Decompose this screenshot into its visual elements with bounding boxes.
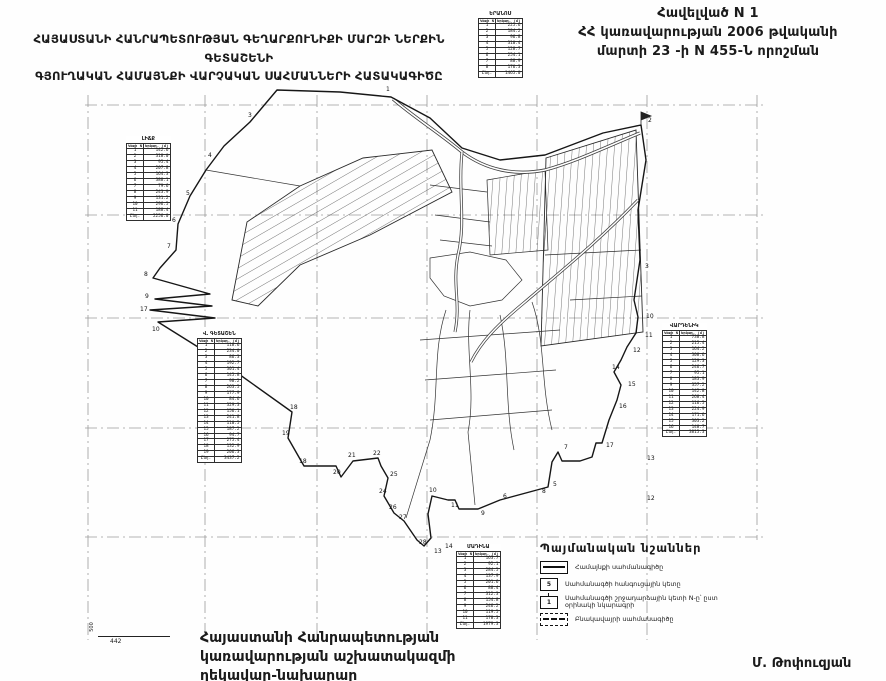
mini-table-east: ՎԱՐԴԵՆԻԿԿետի NԵրկար. (մ)1738.82215.43164… [662, 323, 707, 437]
title-line1: ՀԱՅԱՍՏԱՆԻ ՀԱՆՐԱՊԵՏՈՒԹՅԱՆ ԳԵՂԱՐՔՈՒՆԻՔԻ ՄԱ… [6, 30, 472, 67]
mini-table-title: ՎԱՐԴԵՆԻԿ [662, 323, 707, 329]
mini-table-west: ԼԻՃՔԿետի NԵրկար. (մ)1142.62318.0395.4420… [126, 136, 171, 221]
point-label: 3 [645, 263, 649, 270]
point-label: 14 [612, 364, 620, 371]
point-label: 27 [399, 514, 407, 521]
point-label: 9 [481, 510, 485, 517]
scanned-map-page: 1234567891710310111214151617758691110131… [0, 0, 886, 681]
legend-item: 5Սահմանագծի հանգուցային կետը [540, 578, 750, 591]
appendix-line3: մարտի 23 -ի N 455-Ն որոշման [540, 43, 876, 62]
mini-table-north: ԵՐԱՆՈՍԿետի NԵրկար. (մ)1225.62184.2396.84… [478, 11, 523, 78]
table-cell: 3815.3 [680, 431, 706, 437]
appendix-line2: ՀՀ կառավարության 2006 թվականի [540, 24, 876, 43]
point-label: 5 [186, 190, 190, 197]
table-row: Ընդ.3815.3 [663, 431, 707, 437]
table-cell: Ընդ. [127, 214, 144, 220]
point-label: 25 [390, 471, 398, 478]
legend-item: 1Սահմանագծի շրջադարձային կետի N-ը՝ ըստ օ… [540, 595, 750, 609]
map-canvas: 1234567891710310111214151617758691110131… [0, 0, 886, 681]
point-label: 8 [144, 271, 148, 278]
point-label: 15 [628, 381, 636, 388]
table-cell: Ընդ. [198, 457, 215, 463]
table-cell: Ընդ. [457, 622, 474, 628]
point-label: 10 [152, 326, 160, 333]
legend-item-label: Սահմանագծի շրջադարձային կետի N-ը՝ ըստ օր… [565, 595, 750, 609]
point-label: 14 [445, 543, 453, 550]
signature: Մ. Թոփուզյան [752, 656, 851, 671]
point-label: 7 [564, 444, 568, 451]
scale-bar: 500 442 [90, 612, 176, 648]
point-label: 16 [619, 403, 627, 410]
table-cell: Ընդ. [479, 71, 496, 77]
scale-left-label: 500 [89, 622, 95, 632]
title-line2: ԳՅՈՒՂԱԿԱՆ ՀԱՄԱՅՆՔԻ ՎԱՐՉԱԿԱՆ ՍԱՀՄԱՆՆԵՐԻ Հ… [6, 67, 472, 86]
table-row: Ընդ.1465.0 [479, 71, 523, 77]
mini-table-title: ԼԻՃՔ [126, 136, 171, 142]
legend-title: Պայմանական նշաններ [540, 541, 750, 555]
issuer-line3: ղեկավար-նախարար [200, 667, 456, 681]
mini-table-grid: Կետի NԵրկար. (մ)1738.82215.43164.24308.6… [662, 330, 707, 437]
point-label: 26 [389, 504, 397, 511]
issuer-block: Հայաստանի Հանրապետության կառավարության ա… [200, 629, 456, 681]
mini-table-grid: Կետի NԵրկար. (մ)1163.7292.13284.54137.95… [456, 551, 501, 629]
mini-table-south: ՄԱԴԻՆԱԿետի NԵրկար. (մ)1163.7292.13284.54… [456, 544, 501, 629]
settlement-line-icon [540, 613, 568, 626]
table-cell: 2256.0 [144, 214, 170, 220]
point-label: 20 [333, 469, 341, 476]
table-row: Ընդ.1979.3 [457, 622, 501, 628]
legend-box: Պայմանական նշաններ Համայնքի սահմանագիծը5… [540, 541, 750, 630]
issuer-line2: կառավարության աշխատակազմի [200, 648, 456, 667]
point-label: 12 [647, 495, 655, 502]
table-cell: 3437.2 [215, 457, 241, 463]
point-label: 11 [451, 502, 459, 509]
point-label: 13 [647, 455, 655, 462]
scale-bottom-label: 442 [110, 638, 121, 645]
legend-item-label: Համայնքի սահմանագիծը [575, 564, 663, 571]
point-label: 17 [140, 306, 148, 313]
point-label: 11 [645, 332, 653, 339]
parcel-strip-blocks [232, 130, 643, 346]
table-cell: Ընդ. [663, 431, 680, 437]
table-row: Ընդ.2256.0 [127, 214, 171, 220]
table-row: Ընդ.3437.2 [198, 457, 242, 463]
appendix-note: Հավելված N 1 ՀՀ կառավարության 2006 թվակա… [540, 5, 876, 62]
point-label: 2 [648, 117, 652, 124]
point-label: 28 [419, 539, 427, 546]
point-label: 7 [167, 243, 171, 250]
scale-line [98, 636, 170, 637]
point-label: 22 [373, 450, 381, 457]
table-cell: 1979.3 [474, 622, 500, 628]
issuer-line1: Հայաստանի Հանրապետության [200, 629, 456, 648]
point-label: 13 [434, 548, 442, 555]
mini-table-southwest: Վ. ԳԵՏԱՇԵՆԿետի NԵրկար. (մ)1118.62234.038… [197, 331, 242, 463]
legend-items: Համայնքի սահմանագիծը5Սահմանագծի հանգուցա… [540, 561, 750, 626]
mini-table-grid: Կետի NԵրկար. (մ)1118.62234.0386.34192.75… [197, 338, 242, 463]
point-label: 5 [553, 481, 557, 488]
node-point-icon: 5 [540, 578, 558, 591]
point-label: 3 [248, 112, 252, 119]
point-label: 24 [379, 488, 387, 495]
point-label: 10 [646, 313, 654, 320]
boundary-line-icon [540, 561, 568, 574]
point-label: 4 [208, 152, 212, 159]
mini-table-grid: Կետի NԵրկար. (մ)1142.62318.0395.44207.85… [126, 143, 171, 221]
appendix-line1: Հավելված N 1 [540, 5, 876, 24]
point-label: 18 [290, 404, 298, 411]
point-label: 17 [606, 442, 614, 449]
point-label: 6 [172, 217, 176, 224]
point-label: 19 [282, 430, 290, 437]
point-label: 8 [542, 488, 546, 495]
legend-item-label: Սահմանագծի հանգուցային կետը [565, 581, 681, 588]
page-title: ՀԱՅԱՍՏԱՆԻ ՀԱՆՐԱՊԵՏՈՒԹՅԱՆ ԳԵՂԱՐՔՈՒՆԻՔԻ ՄԱ… [6, 30, 472, 86]
legend-item: Բնակավայրի սահմանագիծը [540, 613, 750, 626]
point-label: 18 [299, 458, 307, 465]
legend-item: Համայնքի սահմանագիծը [540, 561, 750, 574]
point-label: 6 [503, 493, 507, 500]
point-label: 21 [348, 452, 356, 459]
legend-item-label: Բնակավայրի սահմանագիծը [575, 616, 674, 623]
turn-point-icon: 1 [540, 596, 558, 609]
mini-table-title: ՄԱԴԻՆԱ [456, 544, 501, 550]
mini-table-title: Վ. ԳԵՏԱՇԵՆ [197, 331, 242, 337]
table-cell: 1465.0 [496, 71, 522, 77]
mini-table-title: ԵՐԱՆՈՍ [478, 11, 523, 17]
point-label: 12 [633, 347, 641, 354]
point-label: 1 [386, 86, 390, 93]
point-label: 9 [145, 293, 149, 300]
point-label: 10 [429, 487, 437, 494]
mini-table-grid: Կետի NԵրկար. (մ)1225.62184.2396.84310.45… [478, 18, 523, 78]
